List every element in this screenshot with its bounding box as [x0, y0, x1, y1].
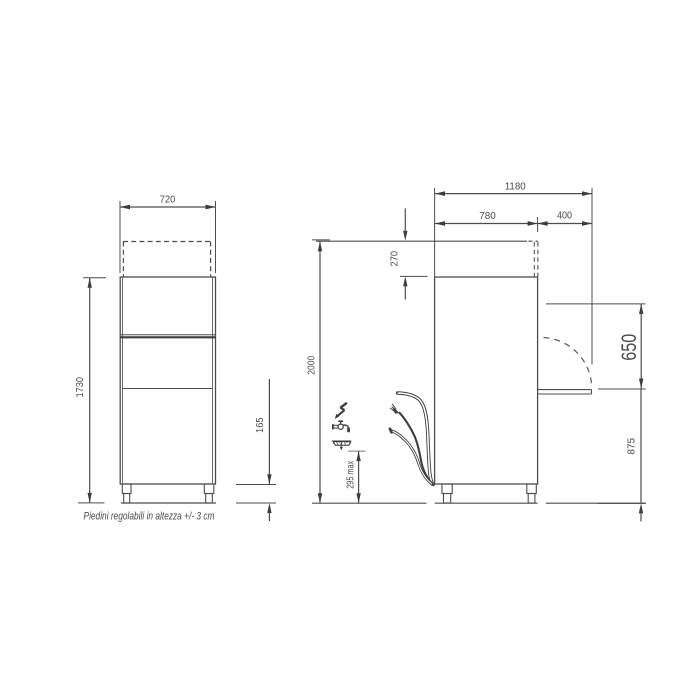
svg-text:1180: 1180: [505, 182, 526, 193]
svg-text:1730: 1730: [75, 377, 86, 398]
svg-text:780: 780: [479, 211, 496, 222]
svg-text:400: 400: [557, 211, 572, 222]
svg-text:Piedini regolabili in altezza: Piedini regolabili in altezza +/- 3 cm: [84, 511, 215, 523]
svg-text:650: 650: [618, 334, 641, 361]
svg-text:270: 270: [390, 251, 401, 267]
svg-text:165: 165: [255, 417, 266, 433]
svg-text:875: 875: [627, 438, 638, 455]
svg-text:2000: 2000: [307, 355, 318, 374]
svg-text:295 max: 295 max: [346, 461, 357, 489]
svg-text:720: 720: [160, 195, 176, 206]
